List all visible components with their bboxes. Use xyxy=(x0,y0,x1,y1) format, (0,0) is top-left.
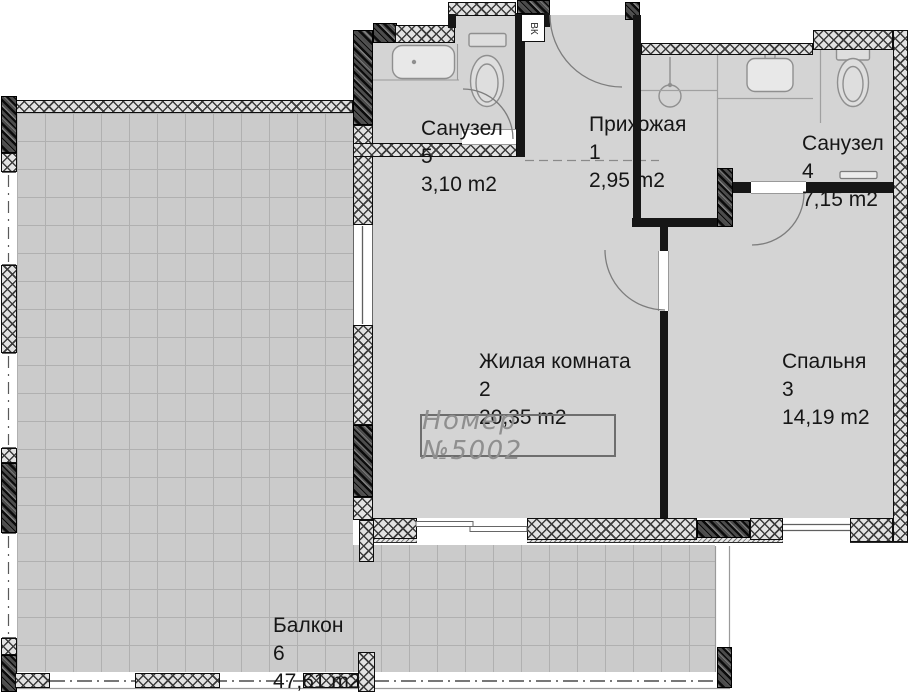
room-label-bedroom: Спальня 3 14,19 m2 xyxy=(782,348,870,432)
room-area: 14,19 m2 xyxy=(782,404,870,432)
room-number: 6 xyxy=(273,640,361,668)
room-area: 3,10 m2 xyxy=(421,171,503,199)
room-area: 2,95 m2 xyxy=(589,167,686,195)
room-label-bathroom-5: Санузел 5 3,10 m2 xyxy=(421,115,503,199)
unit-number-stamp: Номер №5002 xyxy=(420,414,616,457)
room-number: 4 xyxy=(802,158,884,186)
room-area: 7,15 m2 xyxy=(802,186,884,214)
room-area: 47,61 m2 xyxy=(273,668,361,692)
sliding-door-panels xyxy=(416,522,527,532)
room-number: 3 xyxy=(782,376,870,404)
room-label-hallway: Прихожая 1 2,95 m2 xyxy=(589,111,686,195)
room-label-bathroom-4: Санузел 4 7,15 m2 xyxy=(802,130,884,214)
room-name: Спальня xyxy=(782,348,870,376)
room-label-balcony: Балкон 6 47,61 m2 xyxy=(273,612,361,692)
room-name: Жилая комната xyxy=(479,348,631,376)
floor-plan: ВК Санузел 5 3,10 m2 Прихожая 1 2,95 m2 xyxy=(0,0,910,692)
room-name: Прихожая xyxy=(589,111,686,139)
unit-number-text: Номер №5002 xyxy=(422,406,614,466)
room-number: 2 xyxy=(479,376,631,404)
room-name: Санузел xyxy=(802,130,884,158)
room-name: Санузел xyxy=(421,115,503,143)
room-name: Балкон xyxy=(273,612,361,640)
room-number: 5 xyxy=(421,143,503,171)
room-number: 1 xyxy=(589,139,686,167)
overlay-graphics xyxy=(0,0,910,692)
